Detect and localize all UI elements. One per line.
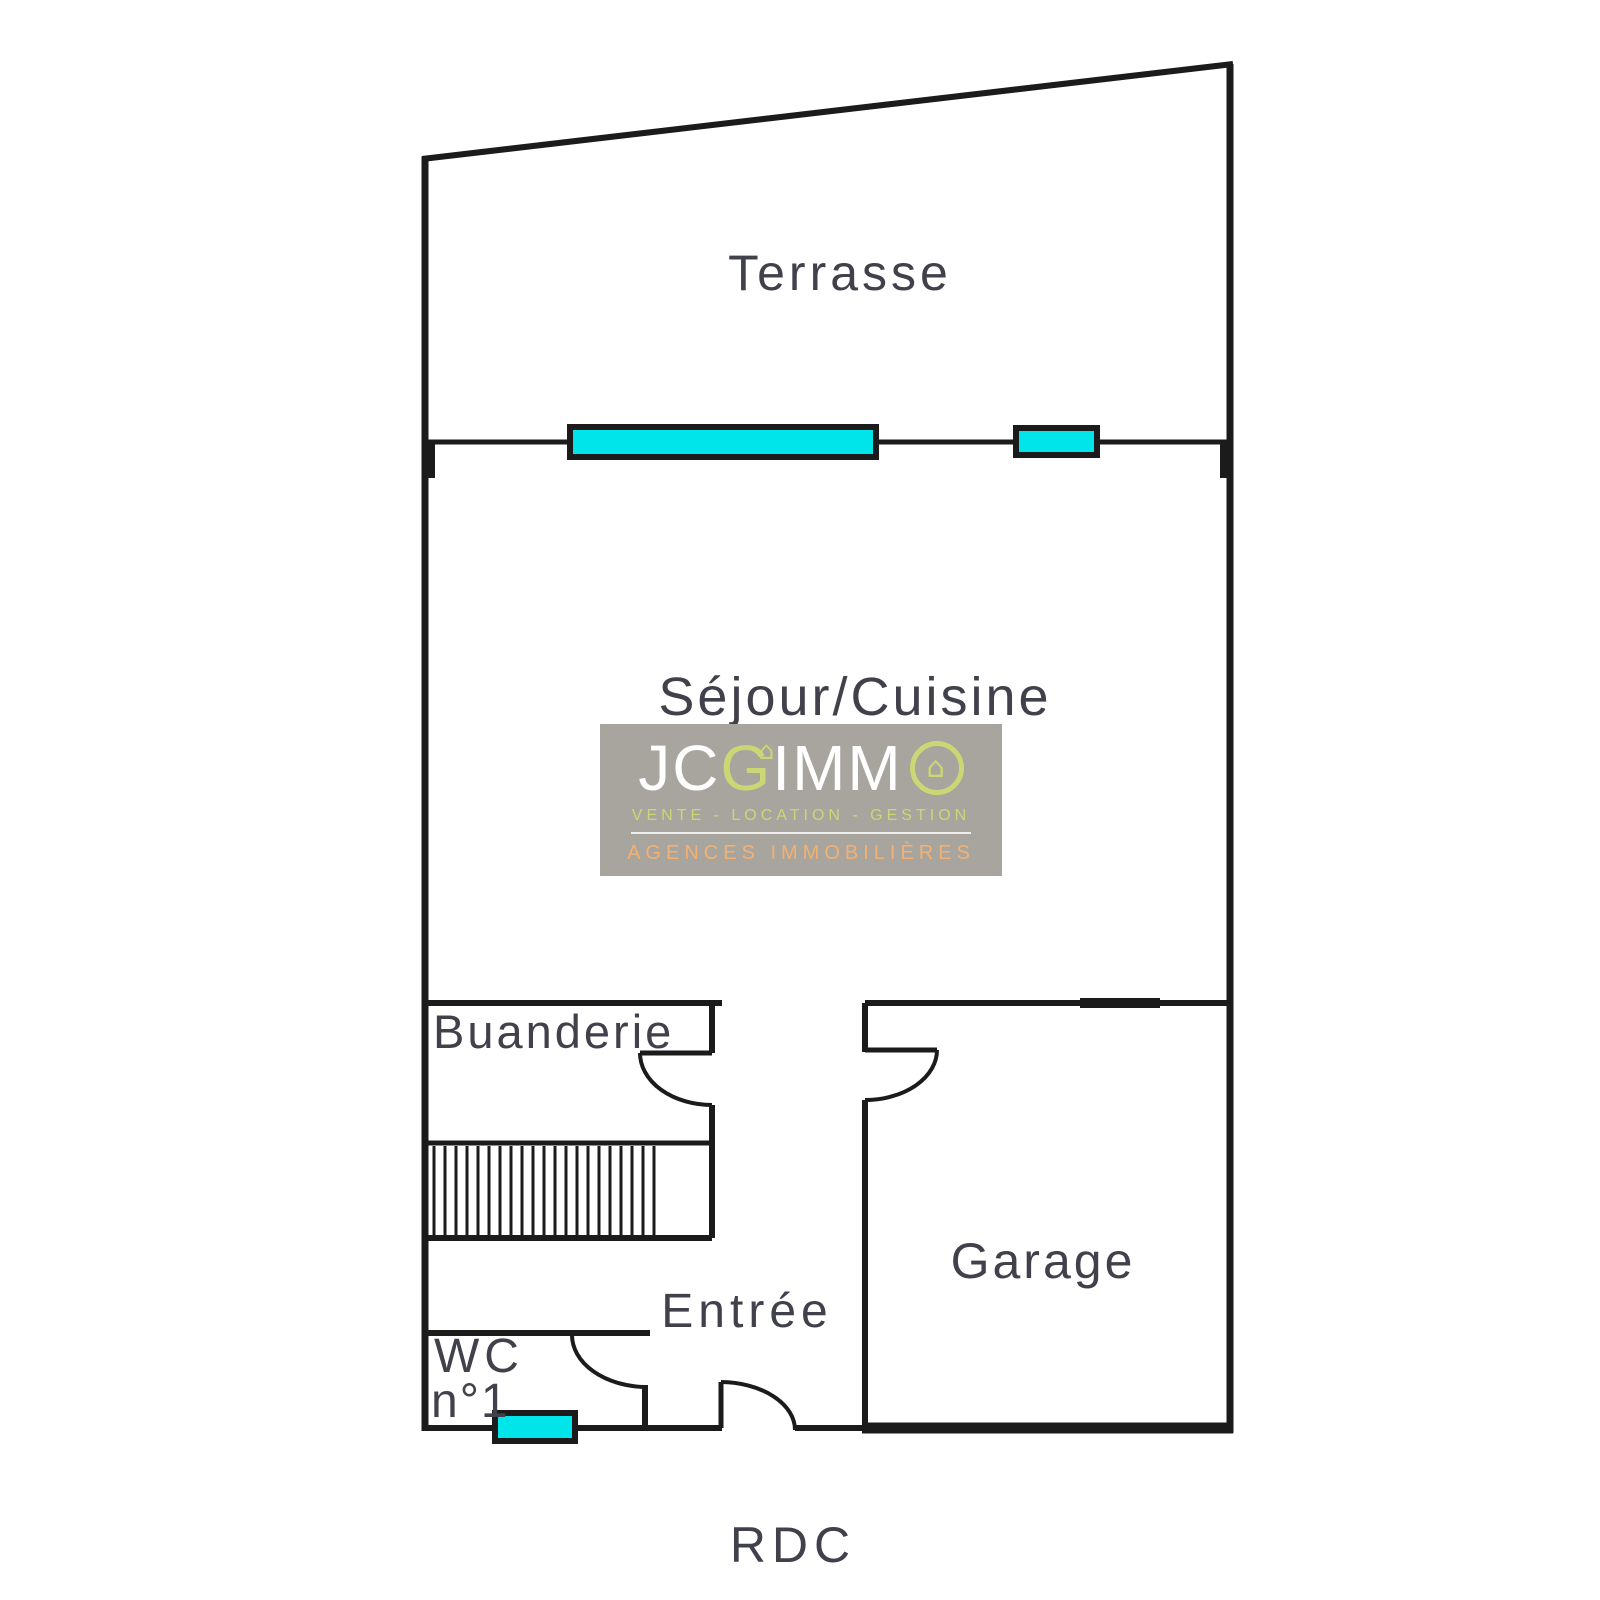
room-label-buanderie: Buanderie xyxy=(433,1006,674,1058)
agency-subtitle: AGENCES IMMOBILIÈRES xyxy=(627,842,975,865)
floor-label-rdc: RDC xyxy=(643,1518,943,1573)
agency-tagline: VENTE - LOCATION - GESTION xyxy=(632,807,970,825)
agency-logo: JCG⌂IMM ⌂ xyxy=(638,736,963,800)
room-label-terrasse: Terrasse xyxy=(640,246,1040,301)
wc-door-arc xyxy=(572,1335,645,1387)
house-in-circle-icon: ⌂ xyxy=(910,741,964,795)
window-large xyxy=(570,427,876,457)
wall-top-sloped xyxy=(422,64,1233,159)
room-label-garage: Garage xyxy=(893,1234,1193,1289)
buanderie-door-arc xyxy=(640,1053,712,1105)
window-small xyxy=(1016,428,1097,455)
logo-text-imm: IMM xyxy=(772,736,902,800)
watermark-divider xyxy=(631,832,971,834)
entrance-door-arc xyxy=(721,1382,795,1430)
house-icon: ⌂ xyxy=(758,738,776,763)
logo-text-jc: JC xyxy=(638,736,720,800)
floor-plan-page: Terrasse Séjour/Cuisine Buanderie Garage… xyxy=(0,0,1600,1600)
stairs-treads xyxy=(434,1146,654,1235)
agency-watermark: JCG⌂IMM ⌂ VENTE - LOCATION - GESTION AGE… xyxy=(600,724,1002,876)
room-label-sejour-cuisine: Séjour/Cuisine xyxy=(605,668,1105,727)
house-icon: ⌂ xyxy=(926,753,946,782)
logo-text-g: G⌂ xyxy=(721,736,773,800)
garage-door-arc xyxy=(865,1050,937,1100)
room-label-entree: Entrée xyxy=(622,1286,872,1339)
room-label-wc-number: n°1 xyxy=(431,1376,510,1429)
